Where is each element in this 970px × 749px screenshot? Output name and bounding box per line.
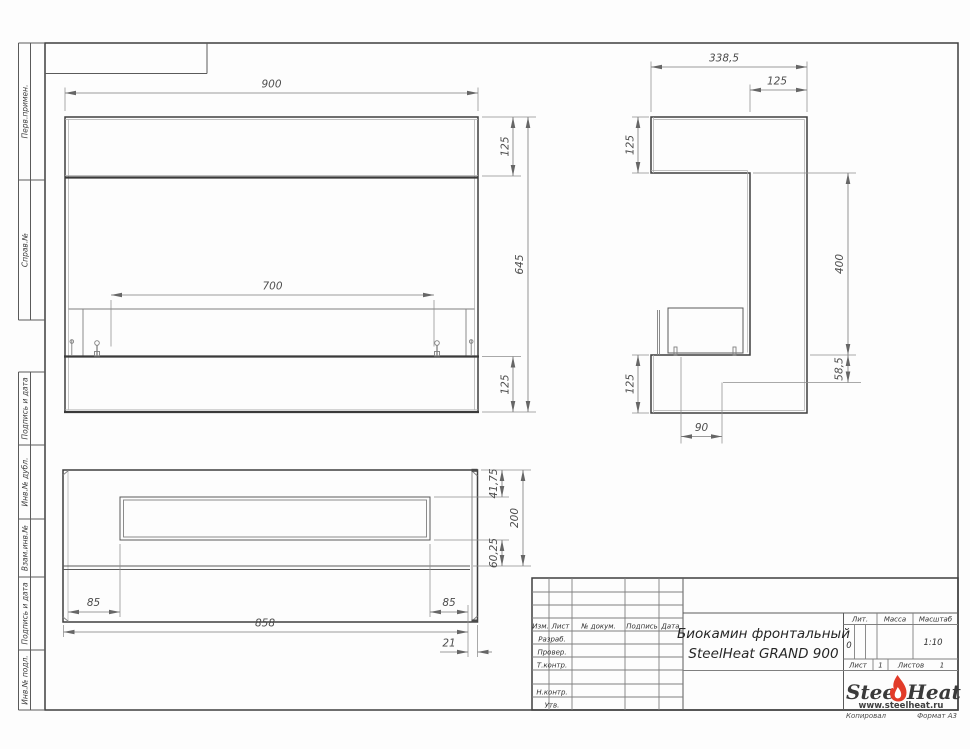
front-view: 900 700 125 645 125 [64, 79, 536, 413]
dim-front-burner-opening: 700 [111, 281, 434, 347]
burner-clip-right [435, 341, 440, 356]
dim-label-338-5: 338,5 [709, 53, 739, 65]
dim-label-125-arm-bottom: 125 [625, 374, 637, 394]
row-checked: Провер. [537, 649, 566, 657]
lit-value: 0 [846, 641, 851, 651]
margin-label-podpis-data-2: Подпись и дата [21, 582, 30, 645]
glass-pin-left [70, 340, 74, 356]
drawing-sheet: Перв.примен. Справ.№ Подпись и дата Инв.… [0, 0, 970, 749]
margin-label-vzam-inv: Взам.инв.№ [21, 525, 30, 571]
document-title-line1: Биокамин фронтальный [677, 626, 850, 642]
dim-bottom-inner-width: 858 [64, 605, 469, 657]
sheet-label: Лист [848, 662, 868, 670]
dim-front-overall-height: 645 [482, 117, 536, 412]
glass-pin-right [469, 340, 473, 356]
dim-bottom-right-offset: 85 [430, 544, 468, 617]
dim-side-base-arm: 125 [625, 355, 650, 413]
dim-label-41-75: 41,75 [488, 468, 500, 498]
dim-label-200: 200 [509, 508, 521, 528]
dim-side-ledge-height: 58,5 [723, 355, 861, 383]
dim-label-400: 400 [834, 254, 846, 274]
burner-clip-left [95, 341, 100, 356]
dim-front-base-panel: 125 [482, 357, 521, 413]
dim-label-21: 21 [442, 638, 455, 650]
dim-bottom-left-offset: 85 [68, 544, 120, 617]
dim-label-125-arm-top: 125 [625, 135, 637, 155]
side-burner-box [658, 308, 744, 355]
dim-bottom-front-offset: 41,75 [434, 468, 531, 498]
mass-label: Масса [884, 616, 906, 624]
sheets-value: 1 [940, 662, 944, 670]
dim-side-tank-width: 90 [681, 357, 722, 444]
dim-side-top-arm: 125 [625, 117, 650, 173]
front-body-outline [65, 117, 478, 412]
margin-label-podpis-data-1: Подпись и дата [21, 377, 30, 440]
margin-label-inv-dubl: Инв.№ дубл. [21, 458, 30, 507]
row-developed: Разраб. [538, 636, 566, 644]
logo-site-url: www.steelheat.ru [859, 701, 944, 711]
dim-label-700: 700 [262, 281, 282, 293]
row-ncontrol: Н.контр. [536, 689, 567, 697]
bottom-view: 41,75 200 60,25 85 85 858 21 [63, 468, 531, 657]
dim-label-125-top: 125 [500, 136, 512, 156]
side-body-outline [651, 117, 807, 413]
sheet-footer: Копировал Формат А3 [846, 712, 957, 720]
sheet-value: 1 [878, 662, 882, 670]
sheets-label: Листов [897, 662, 924, 670]
bottom-corner-cap-bottom [472, 620, 478, 623]
burner-slot-outer [120, 497, 430, 540]
col-izm: Изм. [532, 623, 548, 631]
dim-label-58-5: 58,5 [834, 357, 846, 381]
dim-label-85-right: 85 [442, 597, 456, 609]
side-view: 338,5 125 125 400 58,5 125 90 [625, 53, 862, 444]
row-tcontrol: Т.контр. [537, 662, 567, 670]
dim-bottom-wall-thickness: 21 [440, 625, 492, 657]
burner-slot-inner [124, 500, 427, 537]
steelheat-logo: Steel Heat www.steelheat.ru [846, 675, 962, 711]
bottom-corner-cap-top [472, 469, 478, 472]
margin-label-perv-primen: Перв.примен. [21, 85, 30, 139]
dim-side-column-depth: 125 [750, 76, 807, 113]
bottom-body-outline [63, 470, 478, 622]
footer-format-label: Формат А3 [917, 712, 957, 720]
dim-label-645: 645 [514, 254, 526, 274]
dim-label-125-column: 125 [767, 76, 787, 88]
document-title-line2: SteelHeat GRAND 900 [688, 646, 838, 662]
col-sign: Подпись [626, 623, 658, 631]
row-approved: Утв. [545, 702, 560, 710]
scale-label: Масштаб [919, 616, 953, 624]
dim-label-60-25: 60,25 [488, 538, 500, 568]
dim-label-125-bottom: 125 [500, 374, 512, 394]
col-list: Лист [551, 623, 571, 631]
title-block: Изм. Лист № докум. Подпись Дата Разраб. … [532, 578, 962, 711]
dim-front-overall-width: 900 [65, 79, 478, 112]
margin-label-inv-podl: Инв.№ подл. [21, 655, 30, 704]
scale-value: 1:10 [923, 638, 942, 648]
dim-bottom-back-offset: 60,25 [434, 538, 509, 568]
col-doc: № докум. [580, 623, 616, 631]
dim-label-858: 858 [255, 618, 275, 630]
dim-label-90: 90 [695, 422, 709, 434]
dim-label-85-left: 85 [87, 597, 101, 609]
lit-label: Лит. [851, 616, 868, 624]
left-margin-columns: Перв.примен. Справ.№ Подпись и дата Инв.… [19, 43, 46, 710]
margin-label-sprav: Справ.№ [21, 233, 30, 267]
footer-copied-label: Копировал [846, 712, 887, 720]
dim-label-900: 900 [261, 79, 281, 91]
